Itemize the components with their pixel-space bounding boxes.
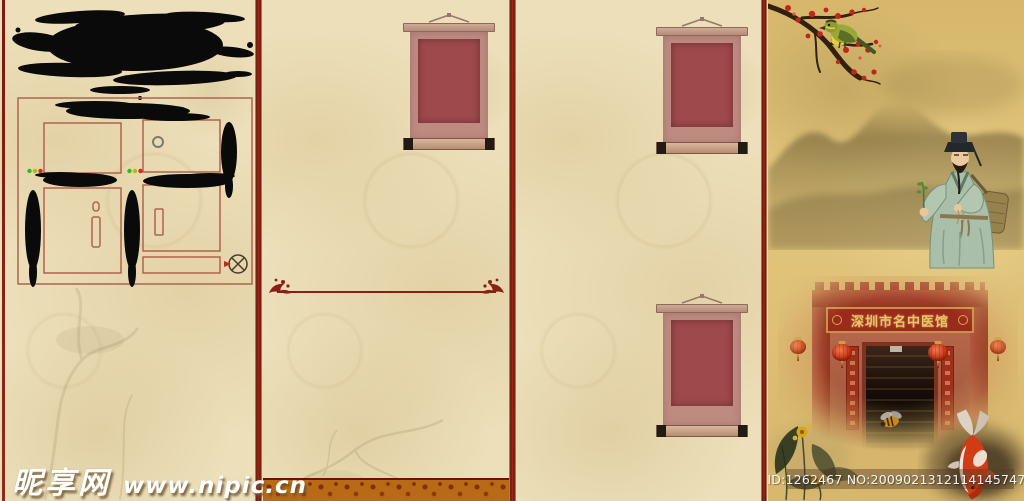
plaque-emblem-right-icon (958, 315, 968, 325)
hanging-scroll (403, 13, 495, 150)
scroll-body (663, 36, 741, 143)
panel-divider (255, 0, 262, 501)
hanging-scroll (656, 17, 748, 154)
hanging-scroll (656, 294, 748, 437)
left-edge-rule (2, 0, 5, 501)
watermark-site-name: 昵享网 (12, 458, 111, 501)
plaque-text: 深圳市名中医馆 (851, 311, 949, 330)
scroll-top-rod (656, 27, 748, 36)
scroll-hanger-string (403, 13, 495, 23)
image-id-watermark: ID:1262467 NO:20090213121141457479 (787, 469, 1014, 489)
brochure-design-canvas: 深圳市名中医馆 (0, 0, 1024, 501)
ink-strokes (25, 101, 237, 287)
red-lantern-icon (790, 340, 806, 354)
faint-foliage-blob (56, 326, 124, 354)
scroll-roller (656, 425, 748, 437)
hall-plaque: 深圳市名中医馆 (826, 307, 974, 333)
scholar-physician-figure (896, 120, 1020, 270)
floral-corner-ornament (269, 279, 291, 294)
scroll-panel (418, 39, 480, 123)
scroll-roller (403, 138, 495, 150)
panel-divider (509, 0, 516, 501)
site-watermark: 昵享网 www.nipic.cn (12, 458, 307, 501)
gate-roof-beam (812, 290, 988, 307)
ring-marker-icon (153, 137, 163, 147)
bee-icon (876, 408, 906, 434)
scroll-hanger-string (656, 17, 748, 27)
ornamental-rule (263, 277, 510, 303)
panel-divider (761, 0, 767, 501)
scroll-panel (671, 320, 733, 406)
scroll-roller (656, 142, 748, 154)
red-lantern-icon (832, 344, 852, 361)
scroll-top-rod (403, 23, 495, 32)
plaque-emblem-left-icon (832, 315, 842, 325)
scroll-hanger-string (656, 294, 748, 304)
red-lantern-icon (990, 340, 1006, 354)
doorway-lamp (890, 346, 902, 352)
scroll-panel (671, 43, 733, 127)
scroll-body (663, 313, 741, 426)
ink-splash (11, 8, 254, 100)
bird-icon (818, 8, 878, 60)
ink-splash-and-layout-diagram (0, 0, 257, 501)
panel-landscape-art: 深圳市名中医馆 (768, 0, 1024, 501)
scroll-body (410, 32, 488, 139)
scroll-top-rod (656, 304, 748, 313)
panel-ink-diagram (0, 0, 257, 501)
red-lantern-icon (928, 344, 948, 361)
watermark-site-url: www.nipic.cn (123, 473, 307, 499)
registration-mark-icon (224, 255, 247, 273)
